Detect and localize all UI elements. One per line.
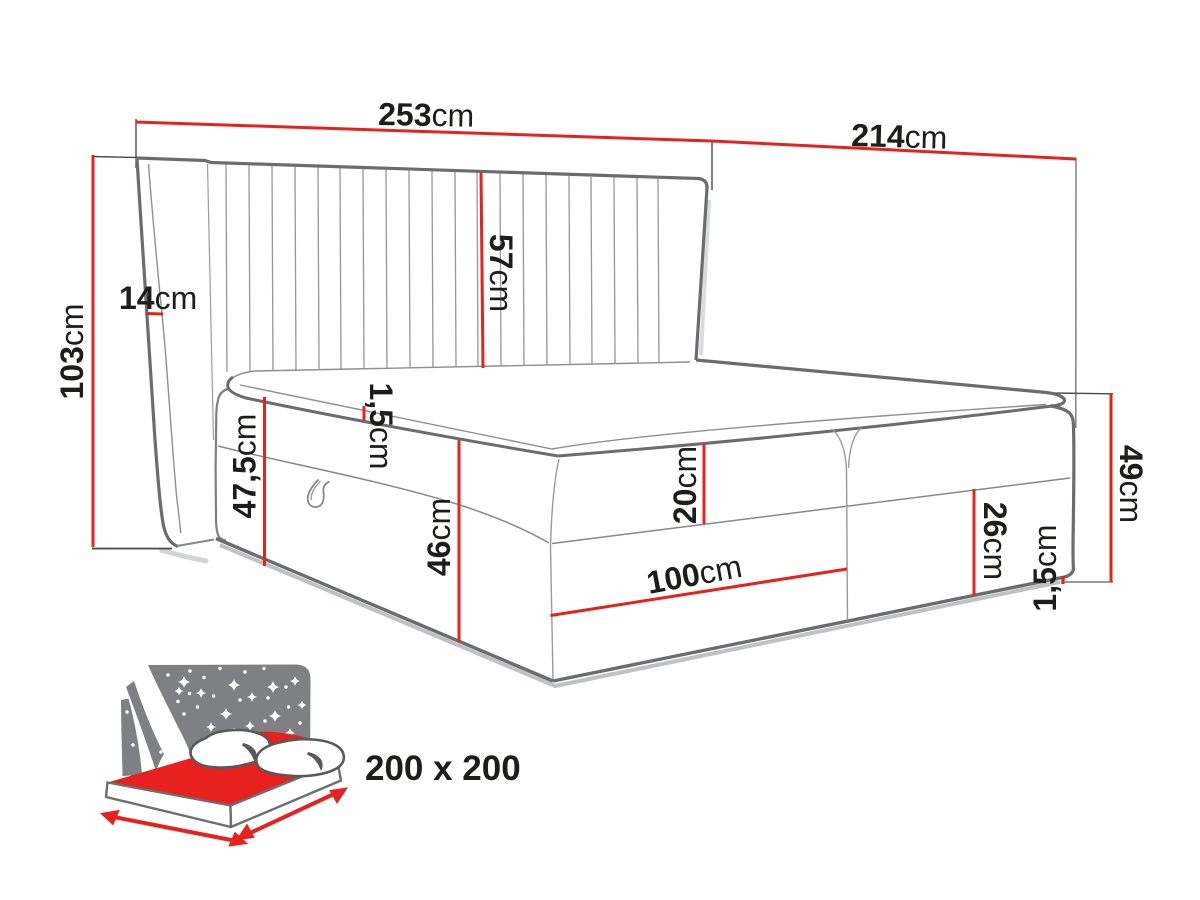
svg-text:20cm: 20cm bbox=[667, 446, 703, 524]
svg-text:47,5cm: 47,5cm bbox=[227, 414, 263, 519]
svg-text:200 x 200: 200 x 200 bbox=[365, 749, 521, 788]
svg-text:57cm: 57cm bbox=[483, 234, 519, 312]
svg-text:214cm: 214cm bbox=[851, 117, 948, 156]
svg-text:46cm: 46cm bbox=[421, 498, 457, 576]
svg-text:253cm: 253cm bbox=[378, 96, 475, 134]
svg-text:14cm: 14cm bbox=[119, 280, 197, 316]
svg-text:26cm: 26cm bbox=[977, 502, 1013, 580]
svg-text:1,5cm: 1,5cm bbox=[363, 382, 399, 469]
svg-text:49cm: 49cm bbox=[1113, 445, 1149, 523]
svg-text:103cm: 103cm bbox=[54, 303, 90, 399]
svg-text:1,5cm: 1,5cm bbox=[1027, 524, 1063, 611]
